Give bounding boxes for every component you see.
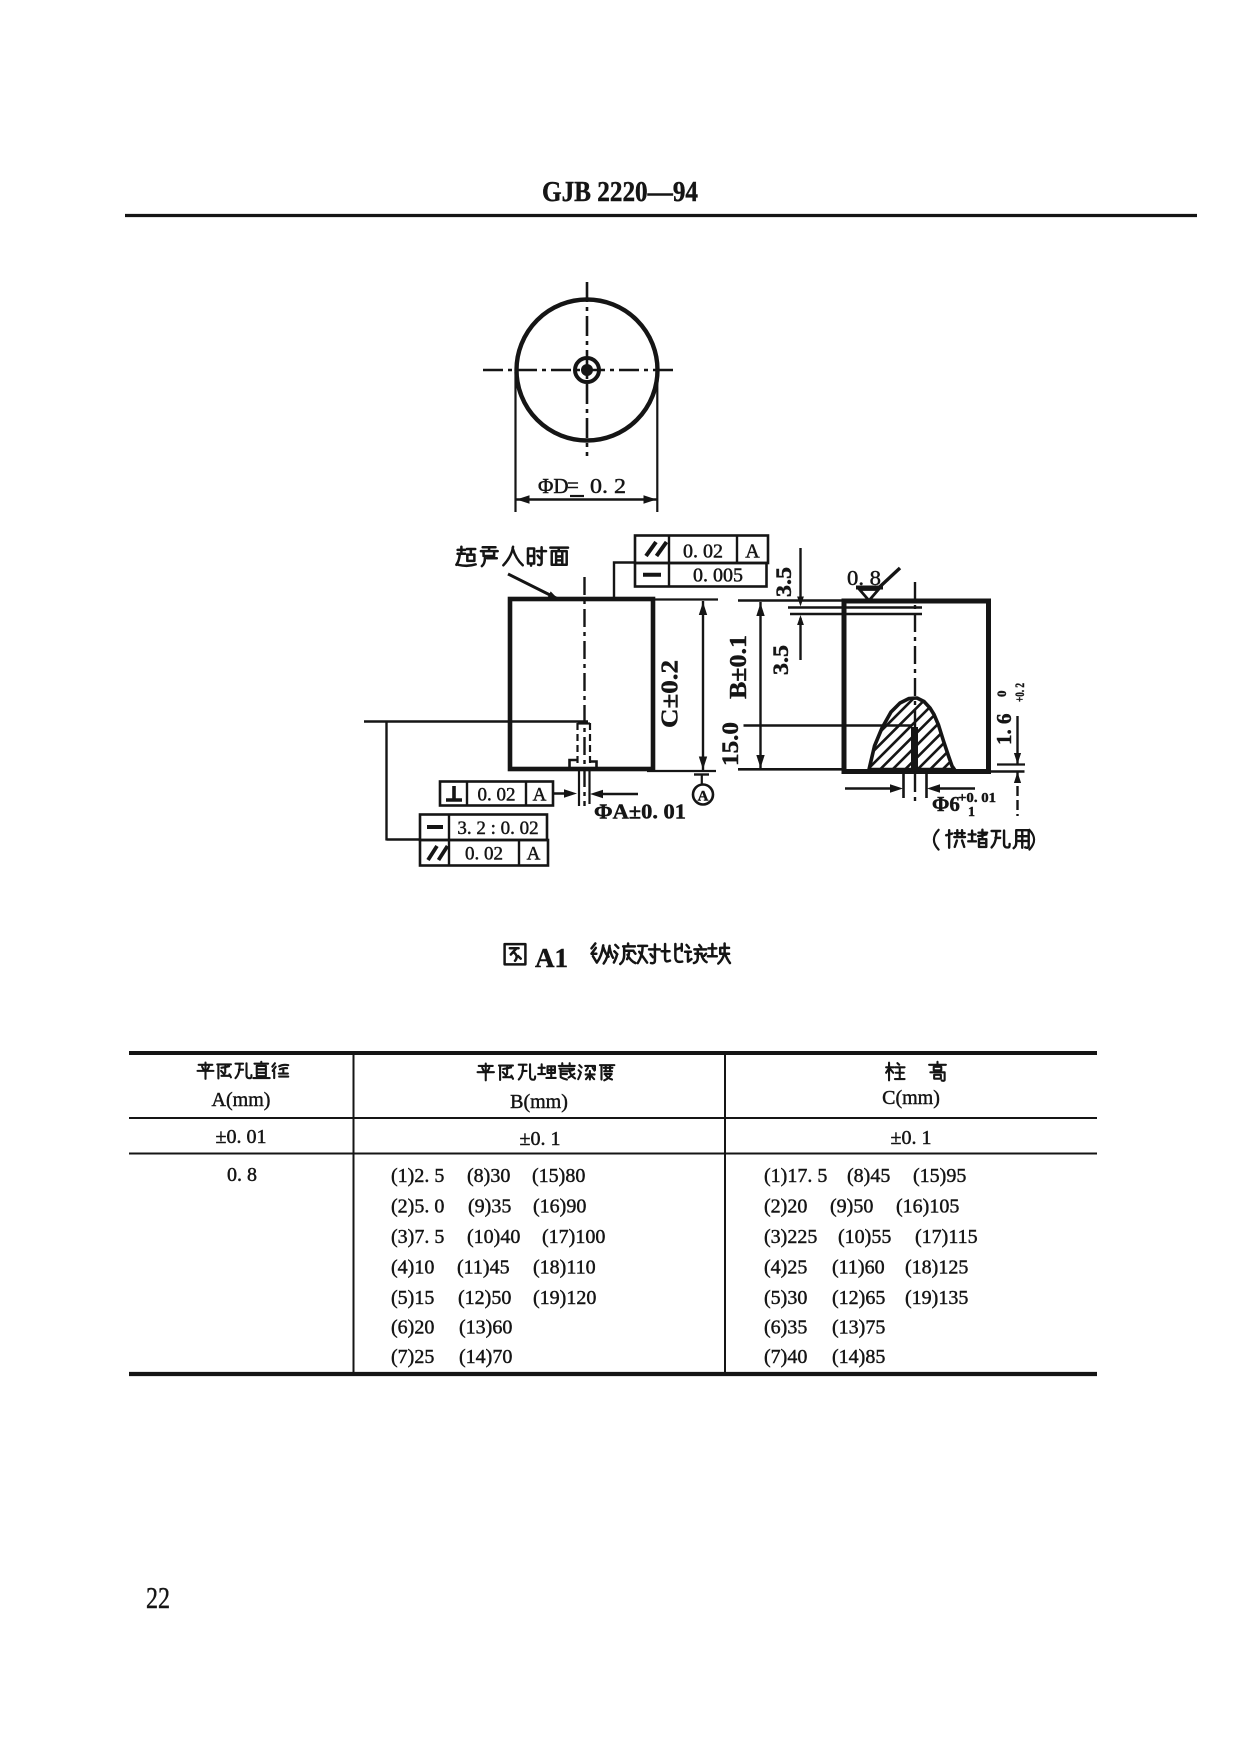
svg-text:(14)70: (14)70 [459,1346,512,1368]
svg-text:(12)50: (12)50 [458,1287,511,1309]
svg-text:0. 8: 0. 8 [227,1164,257,1186]
svg-text:0. 02: 0. 02 [683,541,723,563]
svg-text:A: A [533,785,547,806]
svg-text:(15)95: (15)95 [913,1165,966,1187]
svg-text:1: 1 [968,805,975,820]
svg-text:(12)65: (12)65 [832,1287,885,1309]
svg-text:(9)50: (9)50 [830,1196,873,1218]
svg-text:(19)135: (19)135 [905,1287,968,1309]
svg-text:(13)75: (13)75 [832,1317,885,1339]
svg-text:+0. 2: +0. 2 [1012,683,1027,702]
svg-text:15.0: 15.0 [718,722,743,766]
svg-text:A: A [527,844,541,865]
svg-text:A1: A1 [535,943,568,973]
svg-text:±0. 1: ±0. 1 [891,1127,932,1149]
svg-text:3.5: 3.5 [771,567,796,597]
svg-text:0. 005: 0. 005 [693,565,743,587]
svg-text:(19)120: (19)120 [533,1287,596,1309]
svg-text:0: 0 [994,691,1009,698]
svg-text:3.5: 3.5 [768,645,793,675]
svg-text:(3)7. 5: (3)7. 5 [391,1226,444,1248]
svg-text:C(mm): C(mm) [882,1087,940,1109]
svg-text:(5)30: (5)30 [764,1287,807,1309]
svg-text:Φ6: Φ6 [932,792,960,816]
svg-text:0. 2: 0. 2 [590,474,626,498]
svg-text:0. 02: 0. 02 [478,785,516,806]
svg-text:(17)115: (17)115 [915,1226,978,1248]
svg-text:±0. 1: ±0. 1 [520,1128,561,1150]
svg-text:(18)110: (18)110 [533,1257,596,1279]
svg-text:(16)105: (16)105 [896,1196,959,1218]
svg-text:(2)20: (2)20 [764,1196,807,1218]
svg-text:(1)2. 5: (1)2. 5 [391,1165,444,1187]
svg-text:(2)5. 0: (2)5. 0 [391,1196,444,1218]
svg-text:(3)225: (3)225 [764,1226,817,1248]
svg-text:(1)17. 5: (1)17. 5 [764,1165,827,1187]
svg-text:(15)80: (15)80 [532,1165,585,1187]
svg-text:+0. 01: +0. 01 [958,791,996,806]
svg-text:A: A [745,541,760,563]
svg-text:(4)25: (4)25 [764,1257,807,1279]
svg-text:(18)125: (18)125 [905,1257,968,1279]
svg-text:(13)60: (13)60 [459,1317,512,1339]
svg-text:(6)35: (6)35 [764,1317,807,1339]
svg-text:(8)30: (8)30 [467,1165,510,1187]
svg-text:(7)25: (7)25 [391,1346,434,1368]
svg-text:A: A [698,789,709,805]
svg-text:0. 02: 0. 02 [465,844,503,865]
svg-text:B(mm): B(mm) [510,1091,568,1113]
svg-text:3. 2 : 0. 02: 3. 2 : 0. 02 [457,818,538,839]
svg-text:GJB 2220—94: GJB 2220—94 [542,176,698,208]
svg-text:(9)35: (9)35 [468,1196,511,1218]
svg-text:(5)15: (5)15 [391,1287,434,1309]
svg-text:22: 22 [146,1580,170,1615]
svg-text:(11)45: (11)45 [457,1257,510,1279]
svg-text:±0. 01: ±0. 01 [216,1126,267,1148]
svg-text:(7)40: (7)40 [764,1346,807,1368]
svg-text:(8)45: (8)45 [847,1165,890,1187]
svg-text:ΦD: ΦD [538,474,569,498]
svg-text:=: = [567,473,579,497]
svg-text:(6)20: (6)20 [391,1317,434,1339]
svg-text:(4)10: (4)10 [391,1257,434,1279]
svg-text:C±0.2: C±0.2 [658,660,684,728]
svg-text:1. 6: 1. 6 [992,714,1016,746]
svg-text:(14)85: (14)85 [832,1346,885,1368]
svg-text:(11)60: (11)60 [832,1257,885,1279]
svg-text:ΦA±0. 01: ΦA±0. 01 [594,800,686,824]
svg-text:(16)90: (16)90 [533,1196,586,1218]
svg-text:A(mm): A(mm) [212,1089,271,1111]
svg-text:(17)100: (17)100 [542,1226,605,1248]
svg-text:B±0.1: B±0.1 [726,635,752,699]
svg-text:(10)40: (10)40 [467,1226,520,1248]
svg-text:(10)55: (10)55 [838,1226,891,1248]
